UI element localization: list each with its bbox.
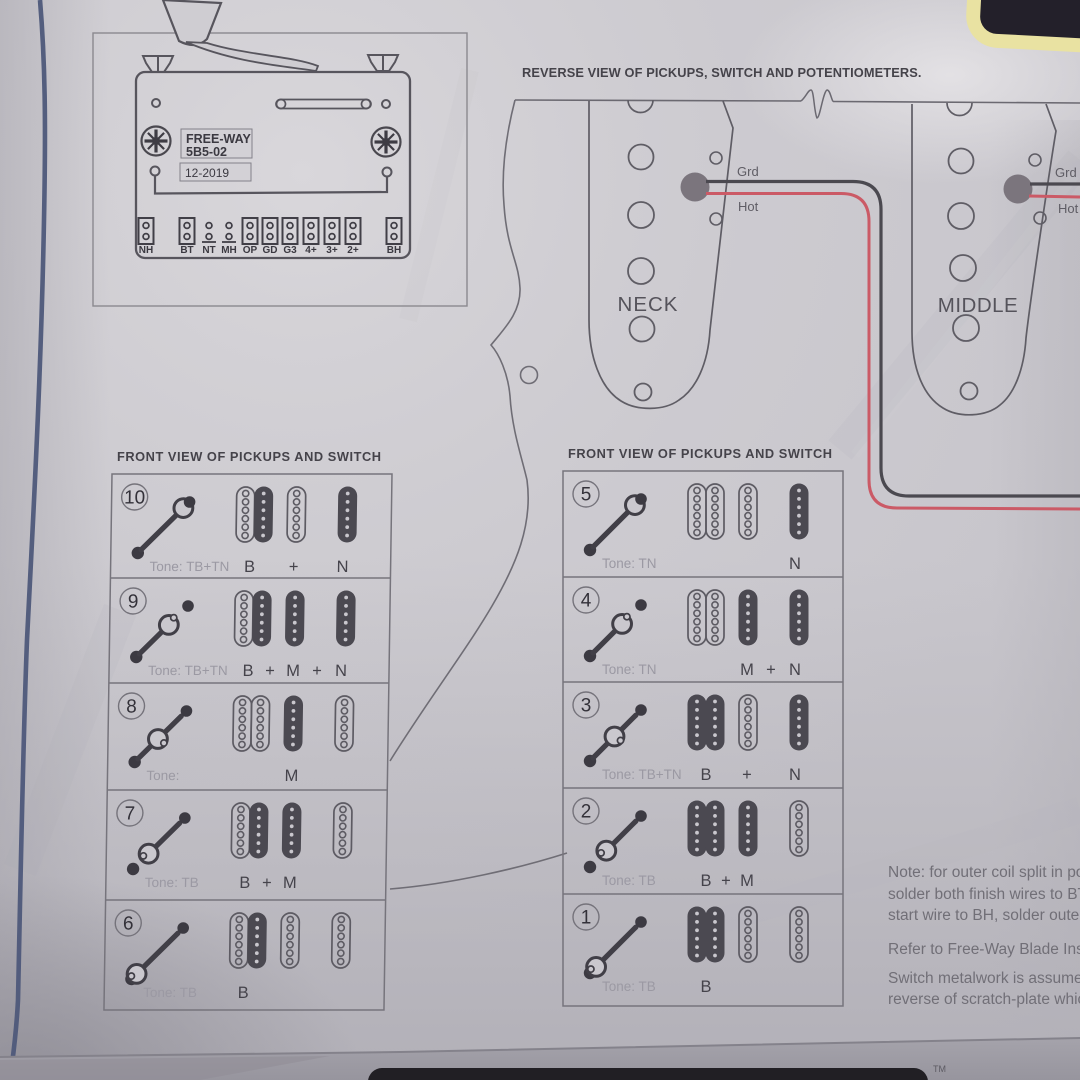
svg-text:FRONT VIEW OF PICKUPS AND SWIT: FRONT VIEW OF PICKUPS AND SWITCH [117, 449, 382, 464]
svg-text:3+: 3+ [326, 245, 338, 256]
svg-text:Tone: TB+TN: Tone: TB+TN [602, 767, 682, 782]
svg-text:start wire to BH, solder outer: start wire to BH, solder outer [888, 907, 1080, 924]
svg-text:N: N [335, 662, 347, 680]
svg-text:FRONT VIEW OF PICKUPS AND SWIT: FRONT VIEW OF PICKUPS AND SWITCH [568, 446, 833, 461]
svg-text:NECK: NECK [618, 293, 679, 316]
svg-text:+: + [721, 872, 731, 890]
svg-text:NT: NT [202, 245, 215, 256]
svg-text:+: + [312, 662, 322, 680]
svg-text:M: M [740, 872, 754, 890]
svg-text:Tone: TB: Tone: TB [143, 985, 197, 1000]
svg-text:REVERSE VIEW OF PICKUPS, SWITC: REVERSE VIEW OF PICKUPS, SWITCH AND POTE… [522, 65, 922, 80]
svg-text:4: 4 [581, 591, 592, 612]
svg-text:6: 6 [123, 914, 134, 935]
svg-text:Tone: TB+TN: Tone: TB+TN [148, 663, 228, 678]
svg-text:B: B [238, 984, 249, 1002]
svg-text:OP: OP [243, 245, 258, 256]
svg-text:B: B [239, 874, 250, 892]
svg-text:Refer to Free-Way Blade Instr: Refer to Free-Way Blade Instr [888, 941, 1080, 958]
svg-text:M: M [283, 874, 297, 892]
svg-text:M: M [286, 662, 300, 680]
svg-text:BH: BH [387, 245, 401, 256]
svg-text:MH: MH [221, 245, 237, 256]
svg-text:1: 1 [581, 908, 592, 929]
svg-text:Tone: TB: Tone: TB [145, 875, 199, 890]
svg-text:9: 9 [128, 592, 139, 613]
svg-text:Tone: TN: Tone: TN [602, 662, 657, 677]
svg-text:+: + [265, 662, 275, 680]
svg-text:N: N [337, 558, 349, 576]
svg-text:N: N [789, 555, 801, 573]
svg-text:Tone: TB: Tone: TB [602, 979, 656, 994]
svg-text:+: + [289, 558, 299, 576]
svg-text:+: + [766, 661, 776, 679]
svg-text:NH: NH [139, 245, 153, 256]
svg-text:M: M [284, 767, 298, 785]
svg-text:TM: TM [933, 1064, 946, 1074]
svg-text:B: B [700, 978, 711, 996]
svg-text:solder both finish wires to BT: solder both finish wires to BT, [888, 886, 1080, 903]
svg-text:Note: for outer coil split in: Note: for outer coil split in pos [888, 864, 1080, 881]
svg-text:10: 10 [124, 488, 145, 509]
svg-text:7: 7 [124, 804, 135, 825]
svg-text:Tone: TB: Tone: TB [602, 873, 656, 888]
svg-text:5: 5 [581, 485, 592, 506]
svg-text:MIDDLE: MIDDLE [938, 294, 1018, 317]
svg-text:Tone: TN: Tone: TN [602, 556, 657, 571]
svg-text:GD: GD [263, 245, 278, 256]
svg-text:+: + [742, 766, 752, 784]
svg-text:Hot: Hot [1058, 201, 1079, 216]
svg-text:reverse of scratch-plate whic: reverse of scratch-plate whic [888, 991, 1080, 1008]
svg-text:Switch metalwork is assumed: Switch metalwork is assumed [888, 970, 1080, 987]
svg-text:N: N [789, 766, 801, 784]
svg-text:Tone:: Tone: [146, 768, 179, 783]
svg-text:+: + [262, 874, 272, 892]
svg-text:B: B [244, 558, 255, 576]
svg-text:Grd: Grd [737, 164, 759, 179]
svg-text:4+: 4+ [305, 245, 317, 256]
svg-text:2+: 2+ [347, 245, 359, 256]
svg-text:BT: BT [180, 245, 193, 256]
svg-text:3: 3 [581, 696, 592, 717]
svg-text:Tone: TB+TN: Tone: TB+TN [150, 559, 230, 574]
svg-text:Grd: Grd [1055, 165, 1077, 180]
svg-text:2: 2 [581, 802, 592, 823]
svg-text:B: B [700, 766, 711, 784]
svg-text:N: N [789, 661, 801, 679]
svg-text:5B5-02: 5B5-02 [186, 145, 227, 159]
svg-text:B: B [242, 662, 253, 680]
svg-text:8: 8 [126, 697, 137, 718]
svg-text:G3: G3 [283, 245, 297, 256]
svg-text:Hot: Hot [738, 199, 759, 214]
svg-text:FREE-WAY: FREE-WAY [186, 132, 251, 146]
svg-text:M: M [740, 661, 754, 679]
svg-text:B: B [700, 872, 711, 890]
svg-text:12-2019: 12-2019 [185, 166, 229, 180]
